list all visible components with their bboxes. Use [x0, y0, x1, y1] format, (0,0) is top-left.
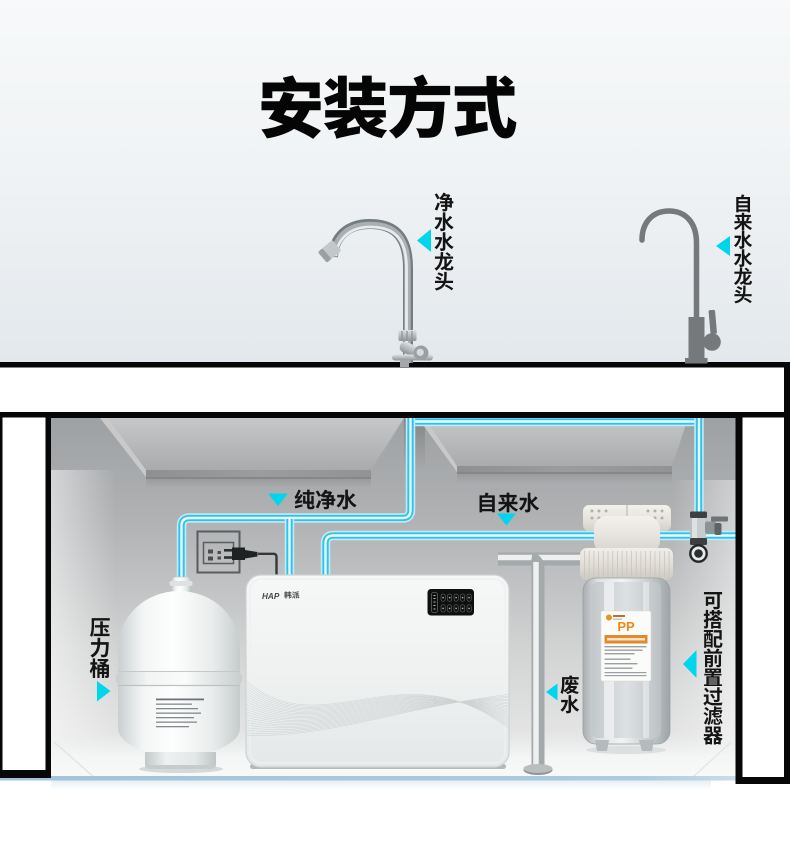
svg-text:PP: PP — [617, 619, 635, 634]
svg-text:HAP: HAP — [262, 592, 280, 601]
